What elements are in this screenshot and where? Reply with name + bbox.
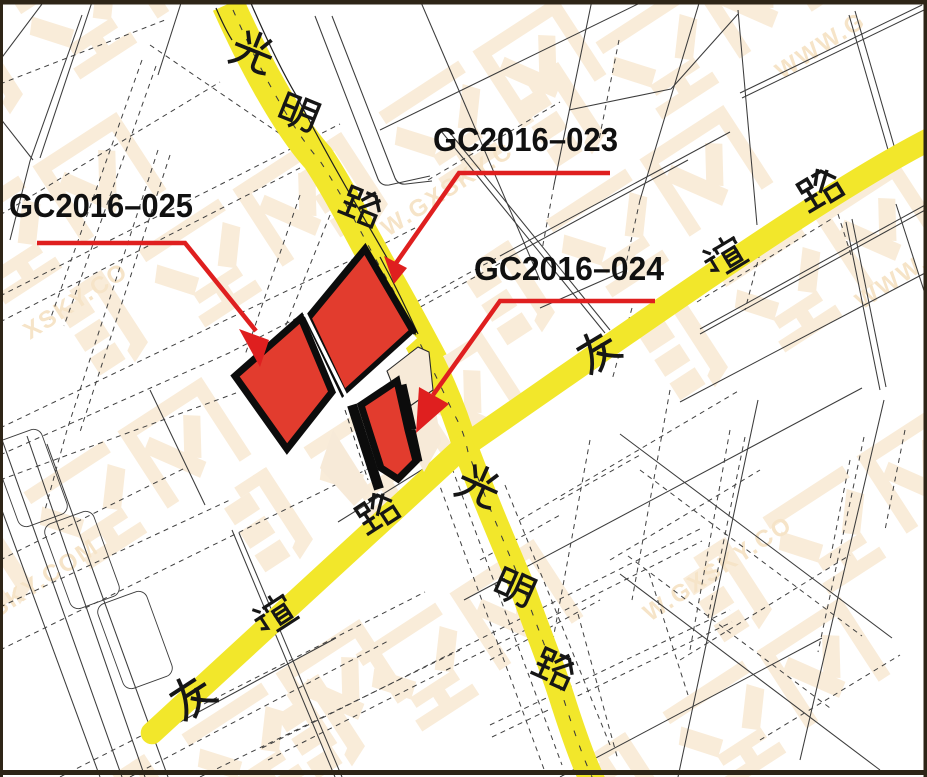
svg-text:GC2016–023: GC2016–023 — [433, 122, 618, 159]
svg-text:GC2016–024: GC2016–024 — [474, 251, 664, 288]
svg-text:GC2016–025: GC2016–025 — [9, 188, 193, 225]
